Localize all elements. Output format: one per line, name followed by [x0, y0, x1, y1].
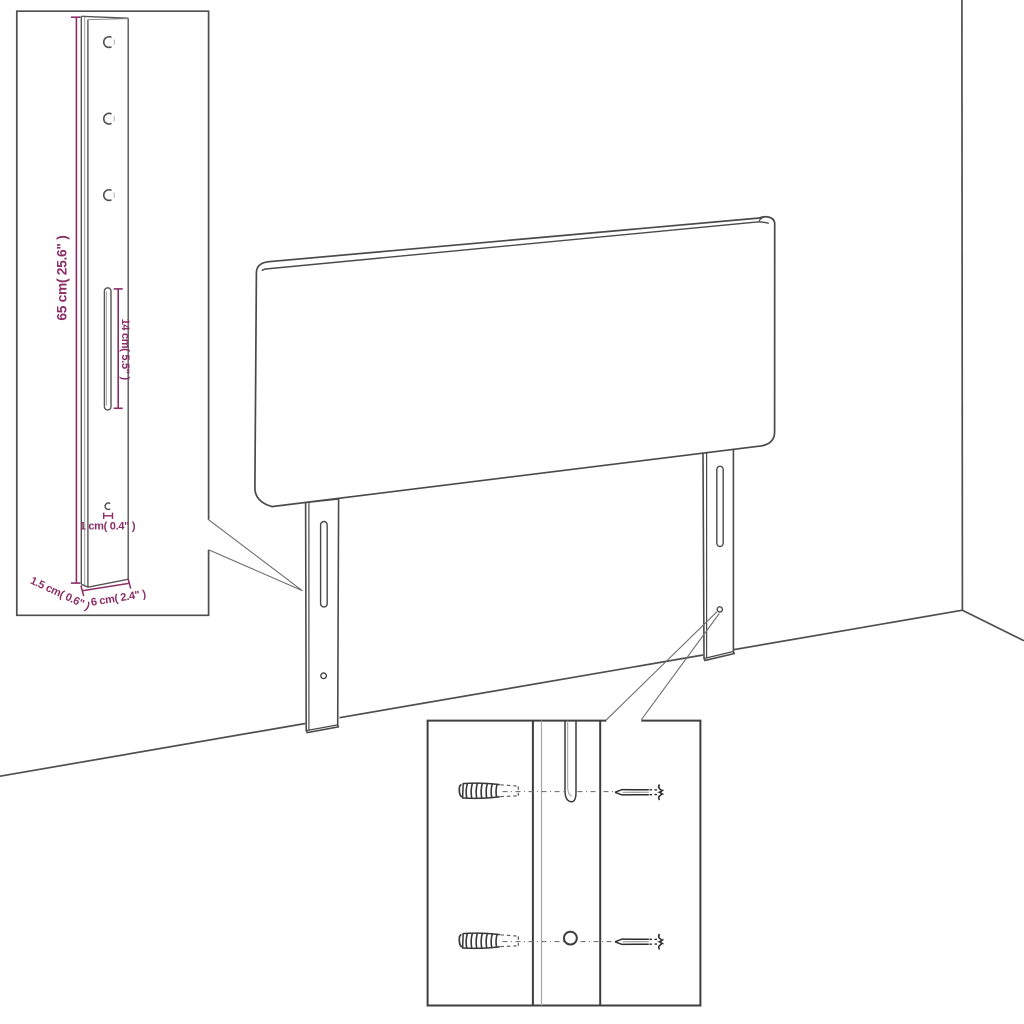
svg-text:1 cm( 0.4" ): 1 cm( 0.4" ) — [80, 521, 136, 533]
svg-text:65 cm( 25.6" ): 65 cm( 25.6" ) — [55, 236, 70, 321]
svg-text:14 cm( 5.5" ): 14 cm( 5.5" ) — [119, 319, 131, 381]
